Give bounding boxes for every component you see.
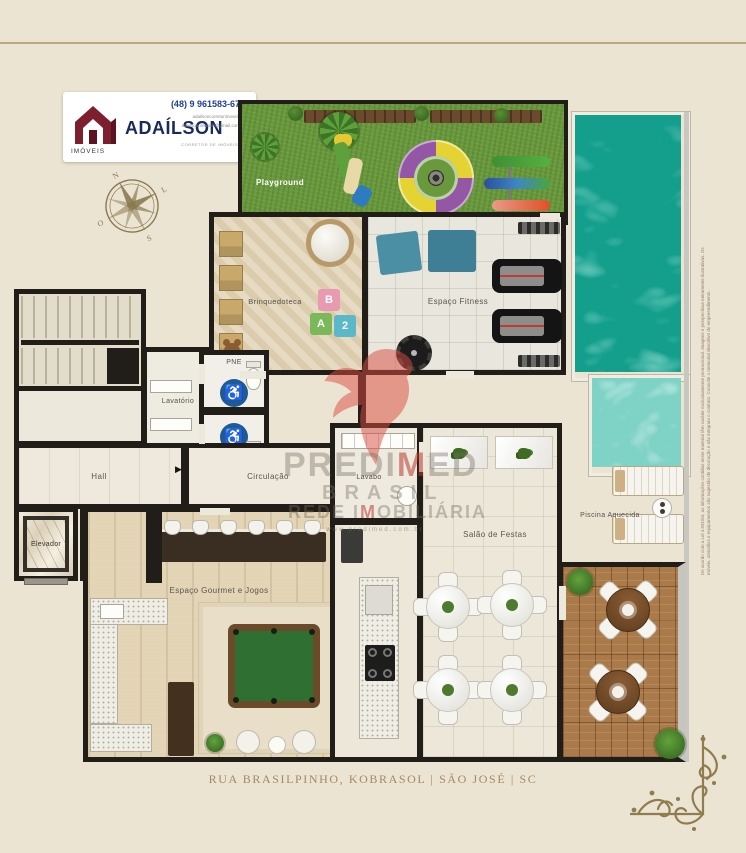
floor-plan: Playground: [0, 0, 746, 853]
bush: [414, 106, 429, 121]
lounge-chair: [236, 730, 260, 754]
room-fitness: Espaço Fitness: [363, 212, 566, 375]
play-bar-blue: [484, 178, 550, 189]
room-lavabo: Lavabo: [330, 423, 422, 523]
bar-stool: [248, 520, 265, 535]
fan: [396, 335, 432, 371]
dumbbell-rack: [518, 355, 560, 367]
centerpiece: [506, 599, 518, 611]
footer-address: RUA BRASILPINHO, KOBRASOL | SÃO JOSÉ | S…: [0, 772, 746, 787]
direction-arrow-icon: ▶: [175, 464, 182, 475]
elevator-door: [24, 578, 68, 585]
console-cabinet: [168, 682, 194, 756]
wall-mass: [146, 505, 162, 583]
legal-disclaimer: De acordo com a Lei 4.591/64, as informa…: [700, 235, 712, 575]
centerpiece: [506, 684, 518, 696]
wall-stub: [358, 373, 366, 425]
palm-plant: [252, 134, 278, 160]
gym-mat: [376, 231, 423, 276]
kitchen-counter: [90, 624, 118, 724]
toilet-tank: [246, 361, 261, 368]
toy-block: A: [310, 313, 332, 335]
bar-stool: [304, 520, 321, 535]
bar-stool: [276, 520, 293, 535]
play-bar-red: [492, 200, 550, 211]
dumbbell-rack: [518, 222, 560, 234]
play-bar-green: [492, 156, 550, 167]
pool-shallow: [589, 375, 690, 476]
toy-shelf: [219, 231, 243, 257]
pool-table: [228, 624, 320, 708]
buffet-table: [430, 436, 488, 469]
bar-stool: [192, 520, 209, 535]
bench: [304, 110, 416, 123]
bar-stool: [220, 520, 237, 535]
label-brinquedoteca: Brinquedoteca: [220, 297, 330, 306]
label-lavabo: Lavabo: [339, 474, 399, 481]
dining-table-group: [413, 572, 483, 642]
door-gap: [199, 364, 205, 384]
pool-deep: [572, 112, 690, 381]
label-playground: Playground: [256, 178, 304, 187]
room-pne-top: PNE ♿: [199, 350, 269, 412]
label-elevador-esq: Elevador: [31, 541, 61, 548]
elevator-left: Elevador: [14, 507, 78, 581]
appliance-counter: [90, 724, 152, 752]
door-gap: [199, 424, 205, 444]
label-salao: Salão de Festas: [441, 530, 549, 539]
door-gap: [540, 213, 560, 219]
sun-lounger: [612, 466, 684, 496]
gym-mat: [428, 230, 476, 272]
floor-plan-page: ADAÍLSON IMÓVEIS (48) 9 961583-67 ✆ adai…: [0, 0, 746, 853]
bench: [430, 110, 542, 123]
corner-ornament: [630, 735, 746, 853]
wall-mass: [107, 348, 139, 384]
label-hall: Hall: [59, 472, 139, 481]
treadmill: [492, 309, 562, 343]
door-gap: [200, 508, 230, 515]
bush: [494, 108, 509, 123]
room-playground: Playground: [238, 100, 568, 225]
label-circulacao: Circulação: [213, 472, 323, 481]
coffee-table: [268, 736, 286, 754]
toy-shelf: [219, 265, 243, 291]
toy-block: 2: [334, 315, 356, 337]
sink: [365, 585, 393, 615]
counter: [341, 433, 415, 449]
label-piscina: Piscina Aquecida: [556, 512, 664, 519]
buffet-table: [495, 436, 553, 469]
carousel-hub: [428, 170, 444, 186]
dining-table-group: [413, 655, 483, 725]
centerpiece: [442, 601, 454, 613]
room-hall: Hall: [14, 443, 186, 509]
bar-counter: [160, 532, 326, 562]
dining-table-group: [477, 655, 547, 725]
treadmill: [492, 259, 562, 293]
room-circulacao: Circulação: [184, 443, 336, 509]
room-gourmet: Espaço Gourmet e Jogos: [83, 507, 335, 762]
bar-stool: [164, 520, 181, 535]
bush: [288, 106, 303, 121]
vestibule: [14, 386, 146, 446]
kids-table: [306, 219, 354, 267]
plant: [206, 734, 224, 752]
door-gap: [446, 371, 474, 379]
sink: [150, 418, 192, 431]
door-gap: [559, 586, 566, 620]
label-fitness: Espaço Fitness: [398, 297, 518, 306]
plant: [567, 569, 593, 595]
door-gap: [240, 371, 266, 379]
carousel: [398, 140, 474, 216]
room-kitchen-support: [330, 520, 422, 762]
lounge-chair: [292, 730, 316, 754]
sink: [100, 604, 124, 619]
stair-flight: [21, 348, 103, 384]
wheelchair-icon: ♿: [220, 379, 248, 407]
cooktop: [365, 645, 395, 681]
label-gourmet: Espaço Gourmet e Jogos: [144, 586, 294, 595]
door-gap: [419, 442, 426, 472]
round-sink: [397, 486, 417, 506]
fridge: [341, 529, 363, 563]
dining-table-group: [477, 570, 547, 640]
stairwell: [14, 289, 146, 391]
elevator-cab: Elevador: [23, 516, 69, 572]
stair-divider: [21, 340, 139, 345]
centerpiece: [442, 684, 454, 696]
sink: [150, 380, 192, 393]
stair-flight: [21, 296, 139, 338]
